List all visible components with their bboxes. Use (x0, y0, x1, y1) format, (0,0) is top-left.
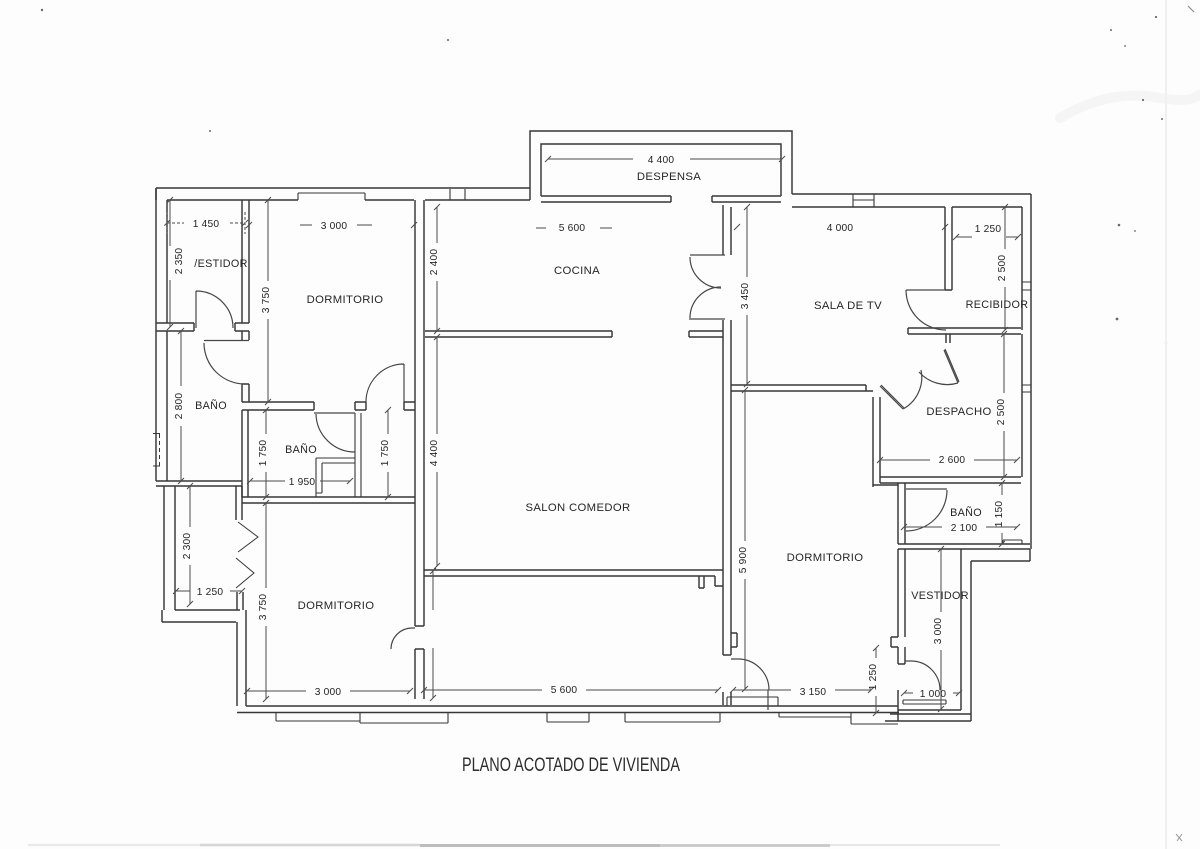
svg-text:SALON COMEDOR: SALON COMEDOR (526, 502, 631, 514)
svg-text:2 300: 2 300 (182, 533, 193, 560)
svg-text:RECIBIDOR: RECIBIDOR (966, 299, 1029, 311)
svg-text:1 750: 1 750 (258, 440, 269, 467)
svg-text:3 450: 3 450 (740, 283, 751, 310)
svg-text:3 750: 3 750 (261, 287, 272, 314)
svg-text:SALA DE TV: SALA DE TV (814, 300, 882, 312)
svg-text:4 400: 4 400 (648, 155, 675, 166)
svg-text:BAÑO: BAÑO (285, 443, 317, 456)
svg-text:1 250: 1 250 (197, 587, 224, 598)
svg-text:1 750: 1 750 (380, 440, 391, 467)
svg-text:5 600: 5 600 (551, 685, 578, 696)
svg-text:2 350: 2 350 (174, 248, 185, 275)
svg-text:COCINA: COCINA (554, 265, 600, 277)
svg-text:BAÑO: BAÑO (195, 399, 227, 412)
svg-text:4 400: 4 400 (429, 440, 440, 467)
svg-text:2 800: 2 800 (174, 393, 185, 420)
svg-text:5 600: 5 600 (559, 223, 586, 234)
svg-text:1 250: 1 250 (975, 224, 1002, 235)
svg-text:3 150: 3 150 (800, 687, 827, 698)
svg-text:1 150: 1 150 (994, 501, 1005, 528)
svg-text:2 500: 2 500 (997, 255, 1008, 282)
svg-text:/ESTIDOR: /ESTIDOR (194, 258, 247, 270)
svg-text:PLANO ACOTADO DE VIVIENDA: PLANO ACOTADO DE VIVIENDA (462, 754, 680, 776)
svg-text:1 000: 1 000 (920, 689, 947, 700)
svg-text:3 000: 3 000 (933, 618, 944, 645)
svg-text:DORMITORIO: DORMITORIO (307, 294, 384, 306)
svg-text:DORMITORIO: DORMITORIO (787, 552, 864, 564)
svg-text:5 900: 5 900 (738, 547, 749, 574)
svg-text:DESPACHO: DESPACHO (926, 406, 991, 418)
svg-text:1 950: 1 950 (289, 477, 316, 488)
svg-text:3 000: 3 000 (315, 687, 342, 698)
svg-text:2 100: 2 100 (951, 523, 978, 534)
svg-text:1 450: 1 450 (193, 219, 220, 230)
svg-text:1 250: 1 250 (868, 664, 879, 691)
svg-text:3 000: 3 000 (321, 221, 348, 232)
svg-text:2 500: 2 500 (996, 399, 1007, 426)
svg-text:DESPENSA: DESPENSA (637, 171, 701, 183)
svg-text:4 000: 4 000 (827, 223, 854, 234)
svg-text:2 600: 2 600 (939, 455, 966, 466)
svg-text:3 750: 3 750 (258, 594, 269, 621)
svg-text:2 400: 2 400 (429, 249, 440, 276)
svg-text:BAÑO: BAÑO (950, 506, 982, 519)
svg-text:DORMITORIO: DORMITORIO (298, 600, 375, 612)
svg-text:VESTIDOR: VESTIDOR (911, 590, 969, 602)
